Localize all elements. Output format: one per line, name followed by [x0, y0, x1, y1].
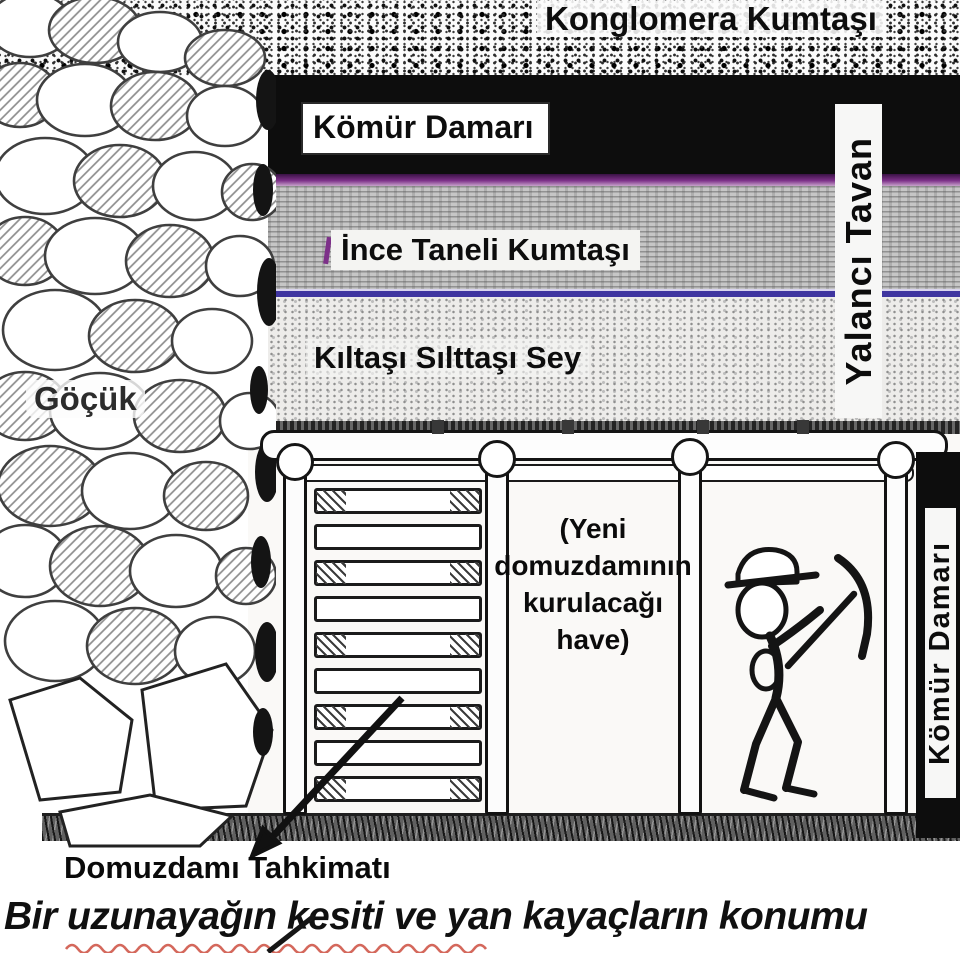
roof-brace-nub [562, 420, 574, 434]
figure-caption: Bir uzunayağın kesiti ve yan kayaçların … [4, 895, 868, 939]
post-cap-joint [877, 441, 915, 479]
crib-timber-layer [314, 524, 482, 550]
roof-log-beam [260, 430, 948, 461]
note-line: have) [468, 621, 718, 658]
post-cap-joint [276, 443, 314, 481]
crib-timber-layer [314, 776, 482, 802]
roof-brace-nub [697, 420, 709, 434]
roof-brace-nub [797, 420, 809, 434]
false-roof-label: Yalancı Tavan [838, 137, 880, 385]
goaf-label: Göçük [26, 380, 145, 418]
goaf-boulders [0, 0, 276, 850]
note-line: domuzdamının [468, 547, 718, 584]
conglomerate-label: Konglomera Kumtaşı [537, 1, 885, 37]
crib-timber-layer [314, 560, 482, 586]
coal-seam-label-box: Kömür Damarı [301, 102, 550, 155]
post-cap-joint [478, 440, 516, 478]
crib-timber-layer [314, 740, 482, 766]
fine-sandstone-label: İnce Taneli Kumtaşı [331, 230, 640, 270]
new-crib-note: (Yeni domuzdamının kurulacağı have) [468, 510, 718, 658]
crib-timber-layer [314, 632, 482, 658]
crib-timber-layer [314, 704, 482, 730]
timber-post [283, 458, 307, 815]
claystone-label: Kıltaşı Sılttaşı Sey [306, 339, 589, 377]
crib-timber-layer [314, 596, 482, 622]
coal-face-label-strip: Kömür Damarı [925, 508, 956, 798]
crib-timber-layer [314, 488, 482, 514]
post-cap-joint [671, 438, 709, 476]
stringer-beam [292, 464, 914, 482]
miner-figure-icon [700, 538, 890, 810]
longwall-cross-section-diagram: Konglomera Kumtaşı Kömür Damarı İnce Tan… [0, 0, 960, 953]
roof-brace-nub [432, 420, 444, 434]
coal-face-label: Kömür Damarı [924, 541, 957, 765]
note-line: kurulacağı [468, 584, 718, 621]
false-roof-strip: Yalancı Tavan [835, 104, 882, 418]
crib-support-label: Domuzdamı Tahkimatı [64, 850, 391, 886]
crib-timber-layer [314, 668, 482, 694]
note-line: (Yeni [468, 510, 718, 547]
